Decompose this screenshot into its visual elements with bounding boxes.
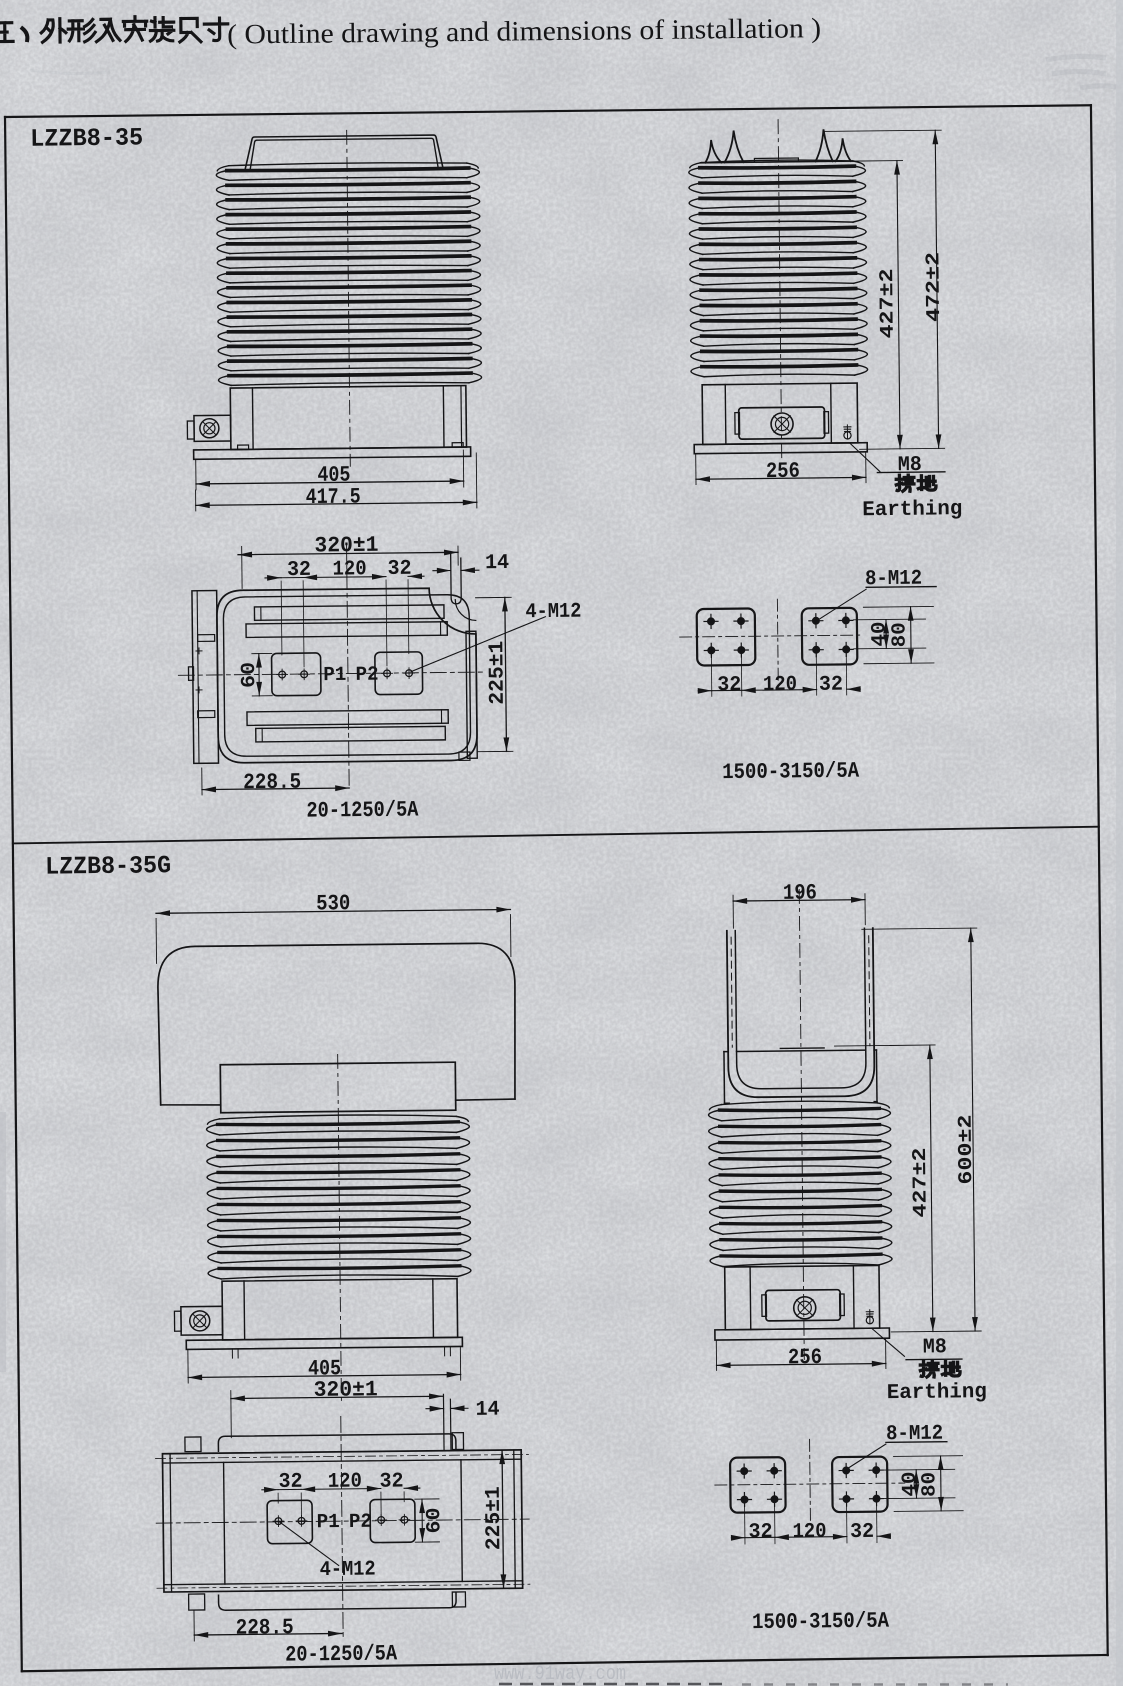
svg-text:417.5: 417.5 bbox=[306, 484, 361, 510]
svg-text:20-1250/5A: 20-1250/5A bbox=[306, 797, 419, 823]
svg-text:1500-3150/5A: 1500-3150/5A bbox=[722, 759, 860, 785]
svg-text:32: 32 bbox=[717, 674, 741, 697]
svg-text:225±1: 225±1 bbox=[483, 1486, 507, 1550]
svg-text:80: 80 bbox=[889, 622, 912, 647]
svg-text:32: 32 bbox=[287, 559, 311, 582]
svg-text:60: 60 bbox=[423, 1507, 446, 1533]
svg-text:Earthing: Earthing bbox=[887, 1381, 987, 1405]
svg-text:4-M12: 4-M12 bbox=[525, 601, 581, 625]
svg-text:32: 32 bbox=[819, 674, 843, 697]
svg-text:Earthing: Earthing bbox=[862, 498, 962, 522]
svg-text:228.5: 228.5 bbox=[243, 770, 301, 796]
svg-text:www.91way.com: www.91way.com bbox=[494, 1663, 626, 1686]
svg-text:320±1: 320±1 bbox=[314, 1377, 378, 1403]
svg-text:320±1: 320±1 bbox=[314, 533, 378, 559]
svg-text:14: 14 bbox=[485, 552, 509, 575]
svg-text:530: 530 bbox=[316, 891, 350, 916]
svg-text:P2: P2 bbox=[355, 664, 378, 687]
svg-text:427±2: 427±2 bbox=[876, 268, 899, 338]
svg-text:M8: M8 bbox=[923, 1336, 947, 1359]
svg-text:LZZB8-35: LZZB8-35 bbox=[30, 124, 143, 154]
svg-text:( Outline drawing and dimen: ( Outline drawing and dimensions of inst… bbox=[227, 13, 821, 50]
svg-text:225±1: 225±1 bbox=[486, 641, 510, 705]
svg-text:60: 60 bbox=[238, 662, 261, 688]
svg-text:32: 32 bbox=[748, 1521, 772, 1544]
svg-text:32: 32 bbox=[850, 1521, 874, 1544]
svg-text:256: 256 bbox=[766, 459, 800, 484]
svg-text:P2: P2 bbox=[349, 1511, 372, 1534]
svg-text:P1: P1 bbox=[317, 1511, 340, 1534]
svg-text:20-1250/5A: 20-1250/5A bbox=[285, 1641, 398, 1667]
svg-text:80: 80 bbox=[918, 1472, 941, 1497]
svg-text:32: 32 bbox=[387, 558, 411, 581]
svg-text:600±2: 600±2 bbox=[955, 1114, 978, 1184]
svg-text:427±2: 427±2 bbox=[909, 1147, 932, 1217]
svg-text:120: 120 bbox=[328, 1471, 362, 1494]
svg-text:120: 120 bbox=[763, 674, 797, 697]
svg-text:1500-3150/5A: 1500-3150/5A bbox=[752, 1609, 890, 1635]
svg-text:32: 32 bbox=[379, 1470, 403, 1493]
svg-text:120: 120 bbox=[792, 1521, 826, 1544]
svg-text:4-M12: 4-M12 bbox=[320, 1558, 376, 1582]
svg-text:228.5: 228.5 bbox=[236, 1615, 294, 1641]
svg-text:32: 32 bbox=[278, 1471, 302, 1494]
svg-text:LZZB8-35G: LZZB8-35G bbox=[45, 851, 171, 881]
svg-text:P1: P1 bbox=[323, 664, 346, 687]
svg-text:120: 120 bbox=[332, 558, 366, 581]
svg-text:14: 14 bbox=[475, 1399, 499, 1422]
svg-text:256: 256 bbox=[788, 1345, 822, 1370]
svg-text:196: 196 bbox=[783, 881, 817, 906]
svg-text:472±2: 472±2 bbox=[922, 252, 945, 322]
